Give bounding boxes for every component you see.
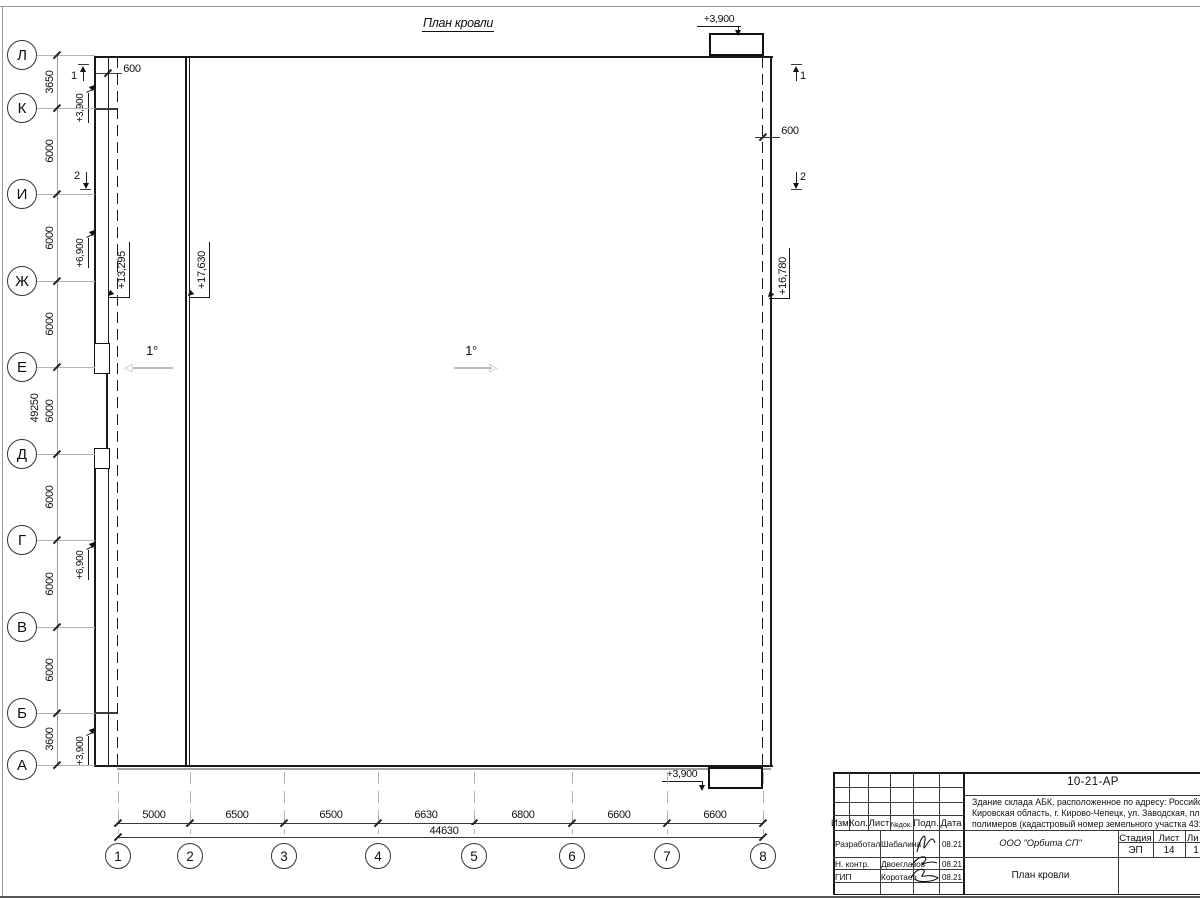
stamp-date-0: 08.21 xyxy=(940,840,964,849)
annex-left-wall-middle xyxy=(106,374,108,448)
bracket-main-left-h xyxy=(189,297,210,298)
axis-circle-5: 5 xyxy=(461,843,487,869)
stamp-sheets-label: Ли xyxy=(1187,833,1200,844)
axis-line-g xyxy=(37,540,95,541)
stamp-description-line1: Здание склада АБК, расположенное по адре… xyxy=(972,797,1200,807)
main-wall-line-2 xyxy=(189,56,191,766)
dim-left-total: 49250 xyxy=(28,378,42,438)
section1-right-label: 1 xyxy=(800,70,806,82)
stamp-h-row2 xyxy=(833,802,963,803)
dim-left-8: 3600 xyxy=(43,709,57,769)
section1-left-label: 1 xyxy=(71,70,77,82)
stamp-col-podp: Подп. xyxy=(912,818,940,829)
axis-label-d: Д xyxy=(17,446,27,463)
stamp-h-row1 xyxy=(833,787,963,788)
ext-line-8 xyxy=(763,772,764,834)
stamp-border-bottom xyxy=(833,894,1200,896)
axis-label-b: Б xyxy=(17,705,27,722)
axis-label-8: 8 xyxy=(759,849,767,864)
axis-circle-i: И xyxy=(7,179,37,209)
elevation-canopy-top: +3,900 xyxy=(697,13,741,25)
axis-line-d xyxy=(37,454,95,455)
axis-circle-7: 7 xyxy=(654,843,680,869)
stamp-col-list: Лист xyxy=(867,818,891,829)
axis-circle-l: Л xyxy=(7,40,37,70)
section2-left-label: 2 xyxy=(74,170,80,182)
parapet-dashed-line-axis-8 xyxy=(762,57,763,766)
axis-circle-e: Е xyxy=(7,352,37,382)
dim-parapet-right: 600 xyxy=(770,125,810,137)
dim-chain-left-line xyxy=(57,55,58,765)
axis-label-4: 4 xyxy=(374,849,382,864)
axis-circle-k: К xyxy=(7,93,37,123)
stamp-col-data: Дата xyxy=(938,818,964,829)
leader-underline-canopy-bottom xyxy=(662,781,702,782)
axis-circle-g: Г xyxy=(7,525,37,555)
axis-label-g: Г xyxy=(18,532,26,549)
annex-inner-line-upper xyxy=(108,57,109,343)
stamp-date-1: 08.21 xyxy=(940,860,964,869)
section2-right-label: 2 xyxy=(800,171,806,183)
axis-circle-4: 4 xyxy=(365,843,391,869)
annex-left-wall-lower xyxy=(94,468,96,766)
axis-label-k: К xyxy=(18,100,27,117)
section1-left-tickbar xyxy=(78,64,89,65)
dim-left-3: 6000 xyxy=(43,294,57,354)
dim-left-0: 3650 xyxy=(43,52,57,112)
section1-right-tickbar xyxy=(791,64,802,65)
elevation-low-roof: +13,295 xyxy=(115,240,129,300)
dim-left-5: 6000 xyxy=(43,467,57,527)
canopy-top-right xyxy=(709,33,764,56)
bracket-low-roof-v xyxy=(129,242,130,297)
slope-arrow-right-line xyxy=(454,367,492,369)
stamp-h-row-sig2 xyxy=(833,869,963,870)
axis-label-2: 2 xyxy=(186,849,194,864)
dim-bottom-2: 6500 xyxy=(301,809,361,821)
axis-label-a: А xyxy=(17,757,27,774)
axis-label-5: 5 xyxy=(470,849,478,864)
dim-left-2: 6000 xyxy=(43,208,57,268)
stamp-role-0: Разработал xyxy=(835,839,880,849)
leader-l2-underline xyxy=(88,238,89,268)
slope-arrow-left-head: ◁ xyxy=(124,361,132,374)
bracket-main-right-h xyxy=(769,298,790,299)
stamp-border-top xyxy=(833,772,1200,774)
ext-line-1 xyxy=(118,772,119,834)
stamp-drawing-title: План кровли xyxy=(963,870,1118,881)
dim-left-6: 6000 xyxy=(43,554,57,614)
drawing-title: План кровли xyxy=(422,16,494,32)
leader-l4-underline xyxy=(88,736,89,766)
axis-label-i: И xyxy=(17,186,28,203)
dim-bottom-1: 6500 xyxy=(207,809,267,821)
axis-label-3: 3 xyxy=(280,849,288,864)
dim-bottom-3: 6630 xyxy=(396,809,456,821)
ext-line-3 xyxy=(284,772,285,834)
sheet-border-top xyxy=(0,6,1200,7)
axis-line-i xyxy=(37,194,95,195)
drawing-sheet: План кровли +3,900 +3,900 +13,295 +17,63… xyxy=(0,0,1200,900)
annex-left-wall-upper xyxy=(94,56,96,344)
leader-underline-canopy-top xyxy=(697,26,741,27)
elevation-left-lower-canopy: +3,900 xyxy=(74,721,88,781)
slope-label-left: 1° xyxy=(132,343,172,358)
slope-arrow-left-line xyxy=(133,367,173,369)
dim-bottom-0: 5000 xyxy=(124,809,184,821)
dim-bottom-6: 6600 xyxy=(685,809,745,821)
elevation-main-roof-left: +17,630 xyxy=(195,240,209,300)
annex-jog-box-axis-d xyxy=(94,448,110,469)
section2-left-tickbar xyxy=(80,189,91,190)
elevation-left-lower-annex: +6,900 xyxy=(74,535,88,595)
stamp-h-doccell xyxy=(963,795,1200,796)
dim-parapet-r-line xyxy=(755,137,780,138)
stamp-name-0: Шабалина xyxy=(881,839,913,849)
axis-circle-zh: Ж xyxy=(7,266,37,296)
ext-line-7 xyxy=(667,772,668,834)
bracket-low-roof-h xyxy=(109,297,130,298)
stamp-date-2: 08.21 xyxy=(940,873,964,882)
leader-l3-underline xyxy=(88,550,89,580)
ext-line-4 xyxy=(378,772,379,834)
parapet-dashed-line-axis-1 xyxy=(117,57,118,766)
stamp-doc-number: 10-21-АР xyxy=(963,776,1200,788)
axis-circle-6: 6 xyxy=(559,843,585,869)
axis-circle-2: 2 xyxy=(177,843,203,869)
stamp-h-header-bottom xyxy=(833,830,1200,831)
dim-left-7: 6000 xyxy=(43,640,57,700)
arrow-canopy-top xyxy=(735,30,741,36)
sheet-border-bottom xyxy=(0,896,1200,898)
axis-label-e: Е xyxy=(17,359,27,376)
axis-label-l: Л xyxy=(17,47,27,64)
section1-right-line xyxy=(796,68,797,81)
stamp-description-line2: Кировская область, г. Кирово-Чепецк, ул.… xyxy=(972,808,1200,818)
roof-right-edge xyxy=(770,56,772,767)
stamp-company: ООО "Орбита СП" xyxy=(963,838,1118,848)
section2-right-tickbar xyxy=(791,189,802,190)
stamp-col-ndok: №док. xyxy=(889,820,914,829)
annex-canopy-edge-b xyxy=(95,712,118,714)
annex-canopy-edge-k xyxy=(95,108,118,110)
dim-left-4: 6000 xyxy=(43,381,57,441)
axis-circle-a: А xyxy=(7,750,37,780)
stamp-sheet-value: 14 xyxy=(1153,845,1185,856)
stamp-description-line3: полимеров (кадастровый номер земельного … xyxy=(972,819,1200,829)
axis-circle-b: Б xyxy=(7,698,37,728)
axis-circle-d: Д xyxy=(7,439,37,469)
bracket-main-right-v xyxy=(789,248,790,298)
stamp-h-row-sig3 xyxy=(833,882,963,883)
main-wall-line-1 xyxy=(185,56,187,766)
axis-label-zh: Ж xyxy=(15,273,29,290)
dim-bottom-5: 6600 xyxy=(589,809,649,821)
annex-jog-box-axis-e xyxy=(94,343,110,374)
elevation-canopy-bottom: +3,900 xyxy=(662,768,702,780)
signature-control-gip xyxy=(906,851,942,884)
axis-label-1: 1 xyxy=(114,849,122,864)
stamp-sheet-label: Лист xyxy=(1153,833,1185,844)
stamp-sheets-value: 1 xyxy=(1186,845,1200,856)
stamp-h-row-sig1 xyxy=(833,857,1200,858)
slope-arrow-right-head: ▷ xyxy=(489,361,497,374)
dim-bottom-4: 6800 xyxy=(493,809,553,821)
arrow-canopy-bottom xyxy=(699,785,705,791)
ext-line-2 xyxy=(190,772,191,834)
dim-bottom-total: 44630 xyxy=(414,825,474,837)
ext-line-6 xyxy=(572,772,573,834)
dim-total-bottom-line xyxy=(118,837,763,838)
stamp-role-2: ГИП xyxy=(835,872,851,882)
stamp-h-row3 xyxy=(833,815,963,816)
axis-circle-1: 1 xyxy=(105,843,131,869)
slope-label-right: 1° xyxy=(451,343,491,358)
stamp-role-1: Н. контр. xyxy=(835,859,869,869)
dim-left-1: 6000 xyxy=(43,121,57,181)
axis-label-6: 6 xyxy=(568,849,576,864)
stamp-stage-label: Стадия xyxy=(1118,833,1153,844)
section1-left-line xyxy=(83,68,84,81)
stamp-col-kol: Кол. xyxy=(848,818,869,829)
tick-total-8 xyxy=(759,833,767,841)
axis-circle-v: В xyxy=(7,612,37,642)
sheet-border-left xyxy=(2,6,3,896)
axis-line-v xyxy=(37,627,95,628)
elevation-left-upper-annex: +6,900 xyxy=(74,223,88,283)
axis-line-zh xyxy=(37,281,95,282)
axis-circle-3: 3 xyxy=(271,843,297,869)
axis-circle-8: 8 xyxy=(750,843,776,869)
stamp-stage-value: ЭП xyxy=(1118,845,1153,856)
axis-label-v: В xyxy=(17,619,27,636)
axis-line-e xyxy=(37,367,95,368)
canopy-bottom-right xyxy=(708,767,763,789)
bracket-main-left-v xyxy=(209,242,210,297)
roof-top-edge xyxy=(94,56,773,58)
annex-inner-line-lower xyxy=(108,469,109,765)
axis-label-7: 7 xyxy=(663,849,671,864)
